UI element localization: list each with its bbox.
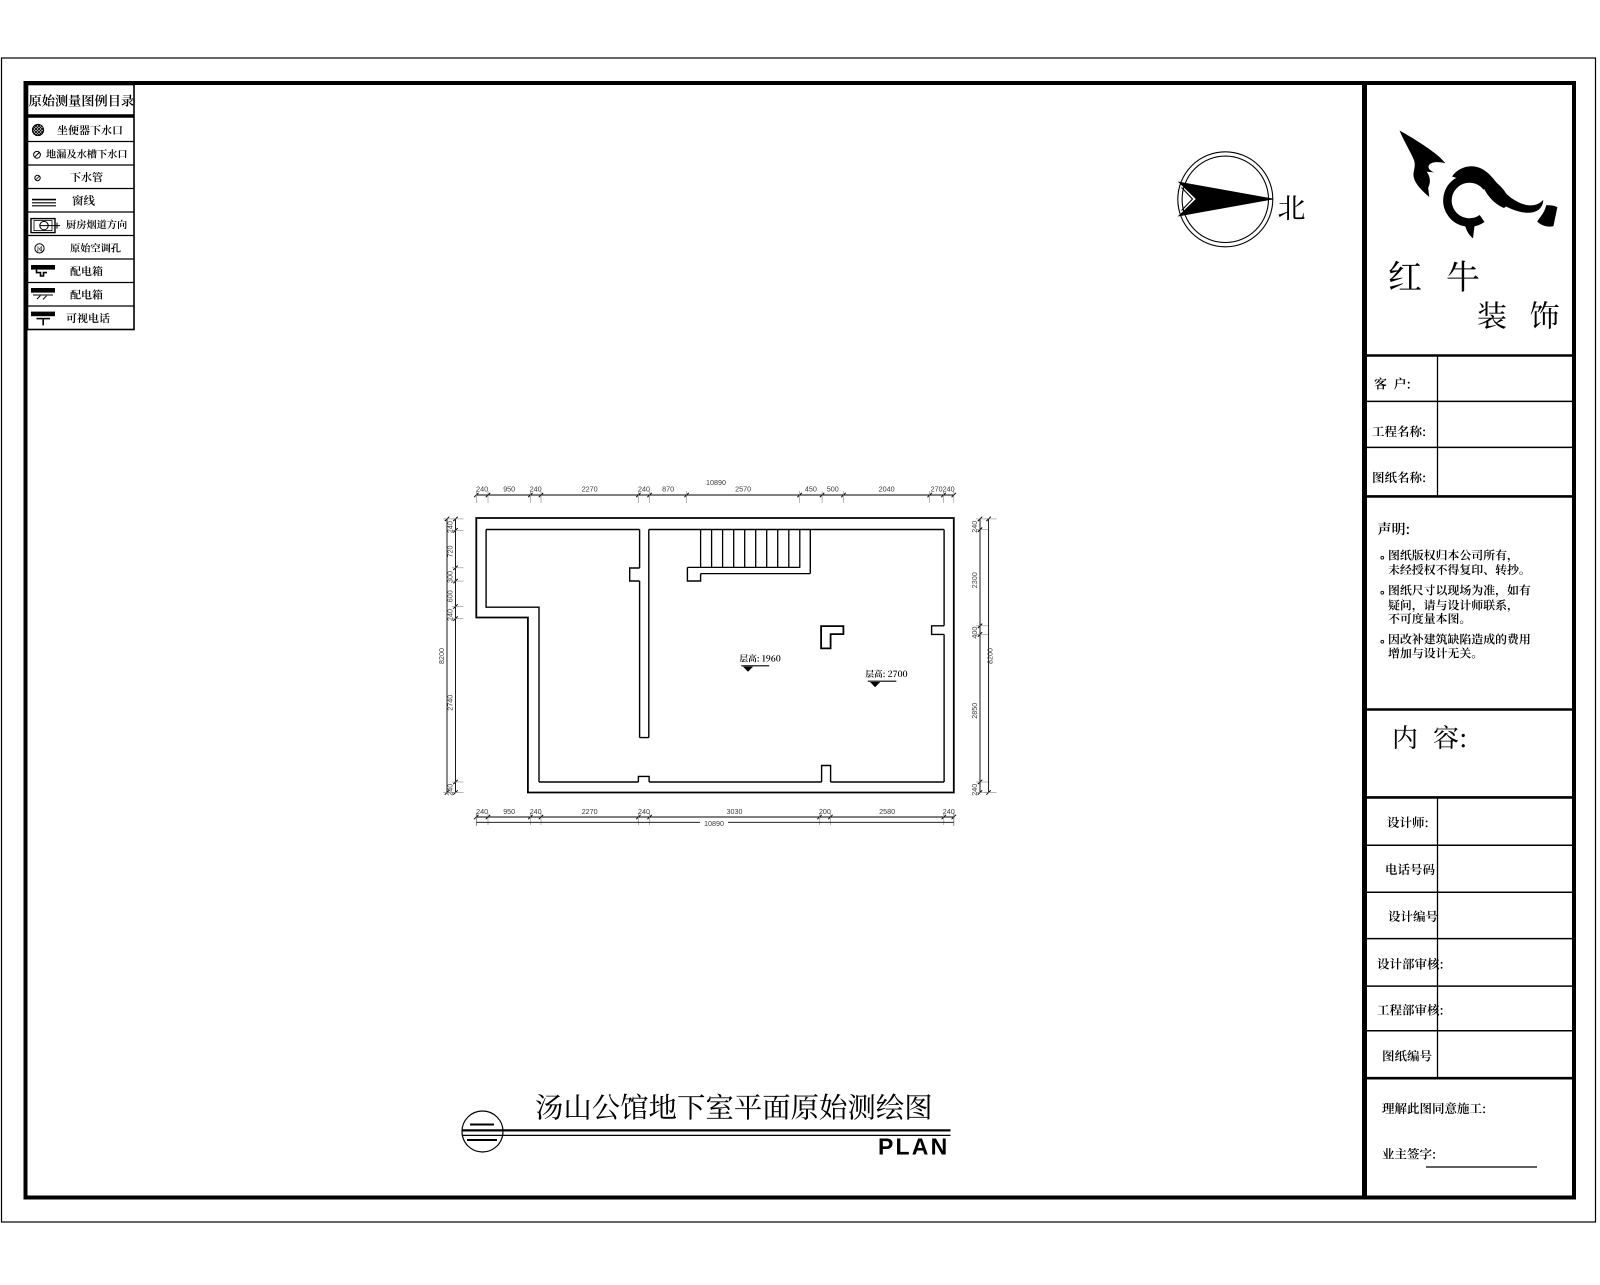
svg-text:240: 240 xyxy=(530,485,542,494)
svg-text:2570: 2570 xyxy=(735,485,751,494)
svg-text:8200: 8200 xyxy=(986,648,995,664)
svg-text:240: 240 xyxy=(476,485,488,494)
svg-text:950: 950 xyxy=(503,485,515,494)
svg-text:2300: 2300 xyxy=(970,572,979,588)
svg-text:240: 240 xyxy=(943,807,955,816)
svg-text:950: 950 xyxy=(503,807,515,816)
svg-text:240: 240 xyxy=(638,807,650,816)
svg-text:240: 240 xyxy=(970,521,979,533)
svg-text:10890: 10890 xyxy=(704,819,724,828)
svg-text:240: 240 xyxy=(970,784,979,796)
svg-text:400: 400 xyxy=(970,627,979,639)
svg-text:2270: 2270 xyxy=(582,485,598,494)
svg-text:PLAN: PLAN xyxy=(878,1134,949,1160)
svg-text:10890: 10890 xyxy=(706,478,726,487)
svg-text:200: 200 xyxy=(819,807,831,816)
svg-text:240: 240 xyxy=(638,485,650,494)
svg-text:240: 240 xyxy=(476,807,488,816)
svg-text:2040: 2040 xyxy=(879,485,895,494)
svg-text:2580: 2580 xyxy=(879,807,895,816)
svg-text:240: 240 xyxy=(943,485,955,494)
svg-text:2850: 2850 xyxy=(970,703,979,719)
svg-text:450: 450 xyxy=(805,485,817,494)
svg-text:240: 240 xyxy=(530,807,542,816)
svg-text:2270: 2270 xyxy=(582,807,598,816)
svg-text:870: 870 xyxy=(662,485,674,494)
svg-text:3030: 3030 xyxy=(727,807,743,816)
svg-text:270: 270 xyxy=(931,485,943,494)
svg-text:8200: 8200 xyxy=(437,648,446,664)
svg-text:500: 500 xyxy=(827,485,839,494)
